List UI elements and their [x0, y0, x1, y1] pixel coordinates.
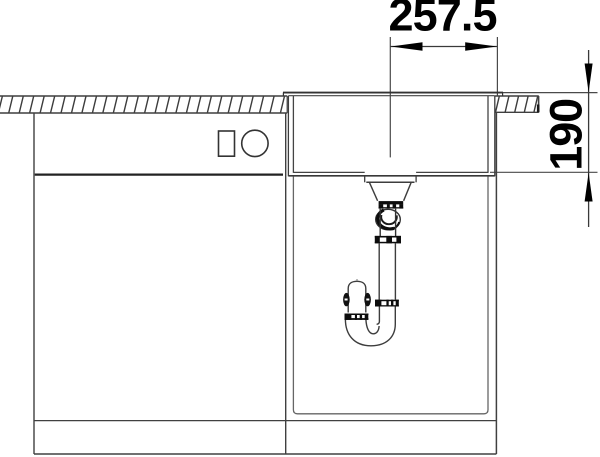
- svg-text:190: 190: [540, 99, 591, 171]
- svg-text:257.5: 257.5: [389, 0, 497, 40]
